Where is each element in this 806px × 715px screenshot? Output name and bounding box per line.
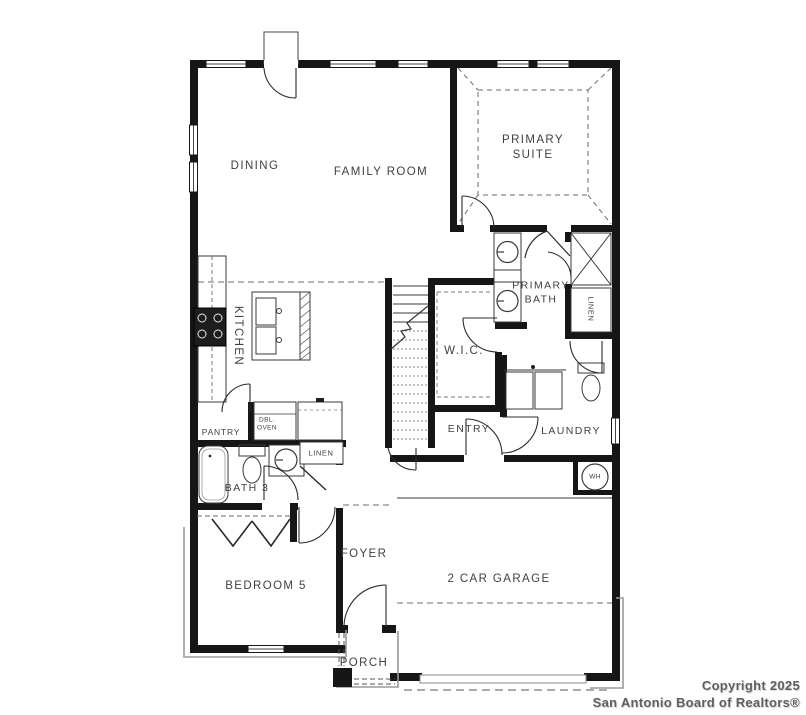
- linen-door: [300, 466, 326, 490]
- laundry-door: [502, 417, 538, 453]
- toilet: [578, 363, 604, 401]
- floor-plan: DINING FAMILY ROOM PRIMARY SUITE KITCHEN…: [0, 0, 806, 715]
- room-label-porch: PORCH: [340, 657, 389, 669]
- room-label-wic: W.I.C.: [444, 345, 484, 357]
- toilet: [239, 445, 265, 483]
- label-dbl-oven: DBL. OVEN: [251, 417, 283, 434]
- room-label-laundry: LAUNDRY: [541, 425, 601, 437]
- shower-door: [548, 252, 571, 278]
- room-label-family-room: FAMILY ROOM: [334, 166, 428, 178]
- room-label-primary-suite: PRIMARY SUITE: [487, 133, 579, 163]
- porch-foundation: [184, 527, 623, 688]
- label-linen-lower: LINEN: [308, 449, 333, 458]
- label-water-heater: WH: [589, 474, 600, 481]
- dryer: [535, 372, 562, 409]
- stairs: [391, 286, 428, 439]
- room-label-pantry: PANTRY: [202, 427, 241, 437]
- kitchen-fixtures: [194, 256, 342, 440]
- room-label-foyer: FOYER: [341, 548, 388, 560]
- primary-bath-door: [525, 231, 570, 258]
- water-closet-door: [570, 341, 602, 373]
- porch-post: [333, 668, 352, 687]
- copyright-line2: San Antonio Board of Realtors®: [593, 695, 800, 710]
- room-label-primary-bath: PRIMARY BATH: [502, 279, 580, 306]
- stair-break-arrow: [391, 306, 428, 349]
- washer: [506, 372, 533, 409]
- room-label-bath3: BATH 3: [224, 482, 270, 496]
- bedroom5-fixtures: [197, 507, 335, 546]
- back-stoop: [264, 32, 298, 64]
- garage-door: [420, 675, 586, 683]
- room-label-dining: DINING: [231, 160, 280, 172]
- cooktop: [194, 308, 226, 346]
- closet-bifold-doors: [212, 519, 290, 546]
- copyright-line1: Copyright 2025: [702, 678, 800, 693]
- bedroom5-door: [299, 507, 335, 543]
- refrigerator-space: [298, 402, 342, 440]
- room-label-garage: 2 CAR GARAGE: [447, 573, 550, 585]
- floor-plan-drawing: [0, 0, 806, 715]
- room-label-entry: ENTRY: [448, 423, 490, 435]
- room-label-bedroom5: BEDROOM 5: [225, 580, 307, 592]
- label-linen-upper: LINEN: [587, 296, 596, 321]
- room-label-kitchen: KITCHEN: [232, 306, 244, 366]
- laundry-fixtures: [502, 365, 566, 453]
